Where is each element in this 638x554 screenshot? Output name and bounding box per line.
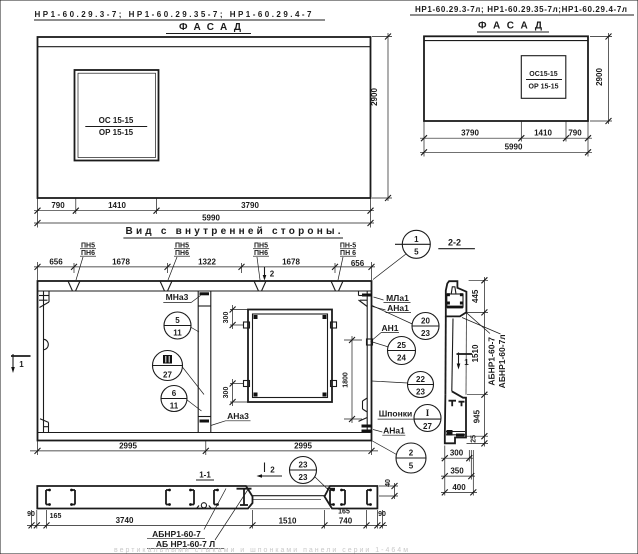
svg-text:90: 90 (27, 511, 35, 518)
svg-text:НР1-60.29.3-7; НР1-60.29.35-7: НР1-60.29.3-7; НР1-60.29.35-7; НР1-60.29… (35, 10, 313, 19)
svg-text:2: 2 (409, 449, 414, 458)
svg-text:656: 656 (351, 259, 365, 268)
svg-text:23: 23 (416, 388, 425, 397)
svg-text:27: 27 (423, 422, 432, 431)
svg-text:350: 350 (450, 467, 464, 476)
svg-text:24: 24 (397, 354, 406, 363)
svg-text:вертикальными стыками и шпонка: вертикальными стыками и шпонками панели … (114, 547, 410, 554)
svg-text:2995: 2995 (294, 442, 312, 451)
svg-text:23: 23 (421, 329, 430, 338)
svg-text:Шпонки: Шпонки (379, 409, 412, 419)
svg-text:5990: 5990 (505, 143, 523, 152)
svg-text:1: 1 (19, 360, 24, 369)
svg-text:6: 6 (172, 389, 177, 398)
svg-text:945: 945 (472, 409, 481, 423)
svg-text:790: 790 (568, 129, 582, 138)
svg-text:300: 300 (450, 449, 464, 458)
svg-text:2: 2 (270, 270, 275, 279)
svg-text:АБНР1-60-7л: АБНР1-60-7л (497, 334, 507, 388)
svg-text:1410: 1410 (108, 201, 126, 210)
svg-text:2995: 2995 (119, 442, 137, 451)
svg-text:1678: 1678 (282, 258, 300, 267)
svg-text:1510: 1510 (279, 517, 297, 526)
svg-text:300: 300 (223, 387, 230, 399)
svg-text:11: 11 (173, 329, 182, 338)
svg-text:1: 1 (414, 235, 419, 244)
svg-text:2: 2 (270, 466, 275, 475)
svg-text:НР1-60.29.3-7л; НР1-60.29.35-7: НР1-60.29.3-7л; НР1-60.29.35-7л;НР1-60.2… (415, 5, 627, 14)
svg-text:1: 1 (464, 358, 469, 367)
svg-text:АНа1: АНа1 (387, 303, 409, 313)
svg-text:22: 22 (416, 375, 425, 384)
svg-text:90: 90 (378, 511, 386, 518)
svg-text:165: 165 (50, 513, 62, 520)
svg-text:АБНР1-60-7: АБНР1-60-7 (152, 529, 201, 539)
svg-text:1510: 1510 (471, 344, 480, 362)
svg-text:АБНР1-60-7: АБНР1-60-7 (487, 337, 497, 386)
svg-text:ОР 15-15: ОР 15-15 (529, 84, 559, 91)
svg-text:790: 790 (51, 201, 65, 210)
svg-text:3740: 3740 (116, 516, 134, 525)
svg-text:165: 165 (338, 509, 350, 516)
svg-text:2-2: 2-2 (448, 238, 461, 248)
svg-text:11: 11 (170, 402, 179, 411)
svg-text:2900: 2900 (370, 88, 379, 106)
svg-text:Вид с внутренней стороны.: Вид с внутренней стороны. (126, 226, 343, 237)
svg-text:ФАСАД: ФАСАД (478, 21, 544, 32)
svg-text:27: 27 (163, 371, 172, 380)
svg-text:МЛа1: МЛа1 (386, 293, 409, 303)
svg-text:5990: 5990 (202, 214, 220, 223)
svg-text:1800: 1800 (343, 372, 350, 388)
svg-text:I: I (426, 408, 430, 418)
svg-text:ОР 15-15: ОР 15-15 (99, 128, 134, 137)
svg-text:5: 5 (175, 316, 180, 325)
svg-text:25: 25 (471, 435, 478, 443)
svg-text:5: 5 (409, 462, 414, 471)
svg-text:ОС 15-15: ОС 15-15 (99, 116, 134, 125)
svg-text:3790: 3790 (241, 201, 259, 210)
svg-text:656: 656 (49, 258, 63, 267)
svg-text:5: 5 (414, 247, 419, 256)
svg-text:23: 23 (299, 461, 308, 470)
svg-text:740: 740 (339, 517, 353, 526)
svg-text:ОС15-15: ОС15-15 (529, 71, 558, 78)
svg-text:3790: 3790 (461, 129, 479, 138)
svg-text:25: 25 (397, 341, 406, 350)
svg-text:2900: 2900 (595, 68, 604, 86)
svg-text:1322: 1322 (198, 258, 216, 267)
svg-text:20: 20 (421, 317, 430, 326)
svg-text:1410: 1410 (534, 129, 552, 138)
svg-text:1-1: 1-1 (199, 471, 211, 480)
svg-text:МНа3: МНа3 (166, 292, 189, 302)
svg-text:АН1: АН1 (381, 323, 398, 333)
svg-text:400: 400 (452, 483, 466, 492)
svg-text:23: 23 (299, 473, 308, 482)
svg-text:АНа3: АНа3 (227, 411, 249, 421)
svg-text:40: 40 (385, 479, 392, 487)
svg-text:1678: 1678 (112, 258, 130, 267)
svg-text:ФАСАД: ФАСАД (179, 22, 243, 33)
svg-text:300: 300 (223, 312, 230, 324)
svg-text:АНа1: АНа1 (383, 426, 405, 436)
svg-text:445: 445 (471, 289, 480, 303)
